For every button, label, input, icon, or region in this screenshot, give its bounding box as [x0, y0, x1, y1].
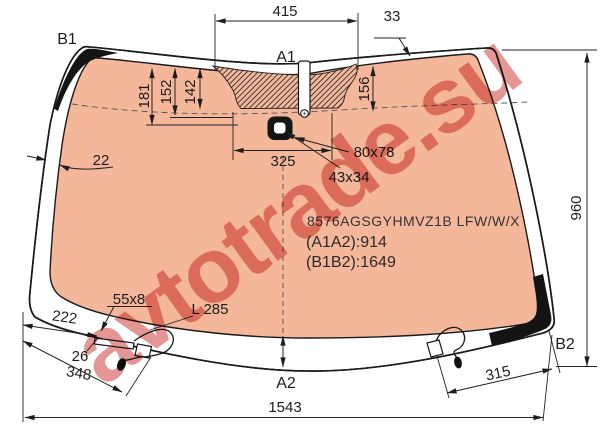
dim-bottom-26: 26: [72, 348, 89, 365]
part-code: 8576AGSGYHMVZ1B LFW/W/X: [307, 213, 520, 229]
diagram-canvas: 415 33 A1 B1 181 152 142 156 22 80x78 43…: [0, 0, 600, 429]
distance-b1b2: (B1B2):1649: [306, 254, 396, 271]
dim-connector: 55x8: [113, 291, 146, 308]
dim-band-152: 152: [158, 79, 175, 104]
dim-top-width: 415: [272, 3, 297, 20]
dim-band-156: 156: [356, 76, 373, 101]
mirror-mount-strip: [299, 61, 311, 117]
point-a2-label: A2: [276, 375, 296, 392]
dim-bottom-width: 1543: [268, 399, 301, 416]
dim-bottom-348: 348: [65, 363, 93, 384]
dim-camera-offset: 325: [270, 153, 295, 170]
dim-height: 960: [568, 195, 585, 220]
dim-bottom-315: 315: [484, 363, 512, 385]
point-a1-label: A1: [276, 49, 296, 66]
dim-edge-band: 22: [93, 152, 110, 169]
dim-band-181: 181: [136, 83, 153, 108]
dim-camera-outer: 80x78: [354, 144, 395, 161]
dim-top-band: 33: [384, 8, 401, 25]
dim-band-142: 142: [182, 79, 199, 104]
dim-bottom-222: 222: [51, 307, 78, 327]
distance-a1a2: (A1A2):914: [306, 234, 387, 251]
windshield-diagram: 415 33 A1 B1 181 152 142 156 22 80x78 43…: [0, 0, 600, 429]
camera-window: [268, 117, 293, 141]
point-b1-label: B1: [57, 31, 77, 48]
dim-wire-length: L 285: [192, 301, 229, 318]
point-b2-label: B2: [555, 336, 575, 353]
dim-camera-inner: 43x34: [329, 169, 370, 186]
